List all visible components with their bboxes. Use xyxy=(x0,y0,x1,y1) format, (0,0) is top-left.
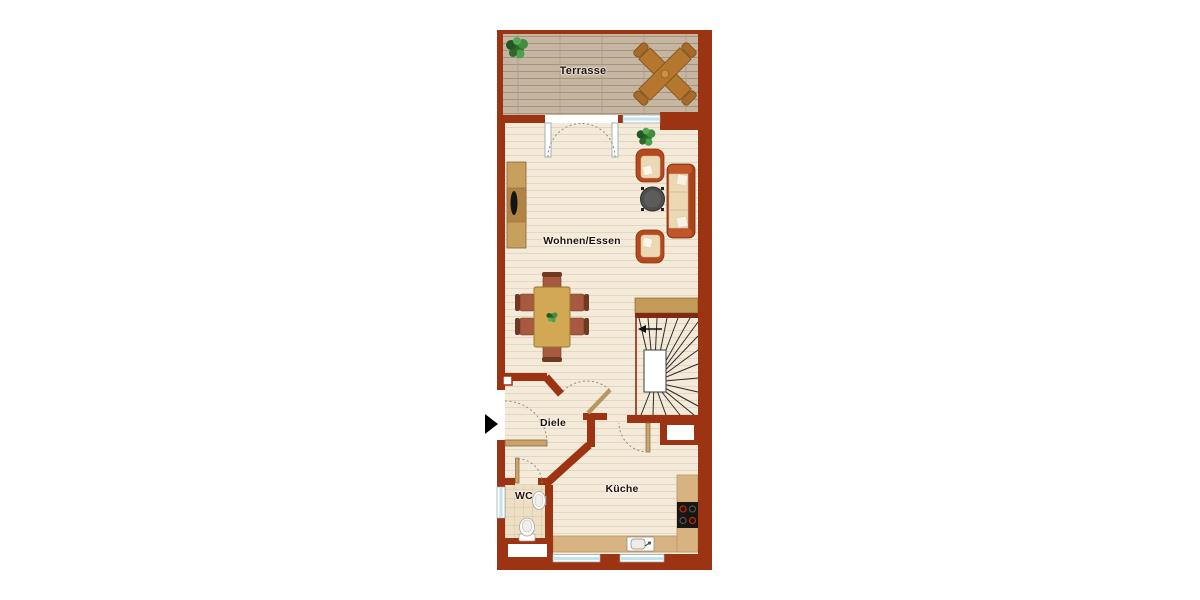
kitchen-sink xyxy=(627,537,654,551)
kitchen-window-right xyxy=(620,555,664,563)
armchair-bottom xyxy=(636,230,664,263)
entrance-arrow xyxy=(485,414,498,434)
coffee-table xyxy=(641,187,665,211)
stair-sideboard-shelf xyxy=(635,298,698,318)
armchair-top xyxy=(636,149,664,182)
sofa xyxy=(667,164,695,238)
kitchen-window-left xyxy=(553,555,600,563)
wc-toilet xyxy=(519,518,535,541)
wc-window xyxy=(497,487,505,518)
wash-basin xyxy=(533,492,547,510)
terrace-window xyxy=(623,115,660,123)
stove xyxy=(677,502,698,528)
floor-plan-drawing xyxy=(477,30,712,570)
floor-plan: Terrasse Wohnen/Essen Diele WC Küche xyxy=(497,30,712,570)
sideboard-with-tv xyxy=(507,162,526,248)
